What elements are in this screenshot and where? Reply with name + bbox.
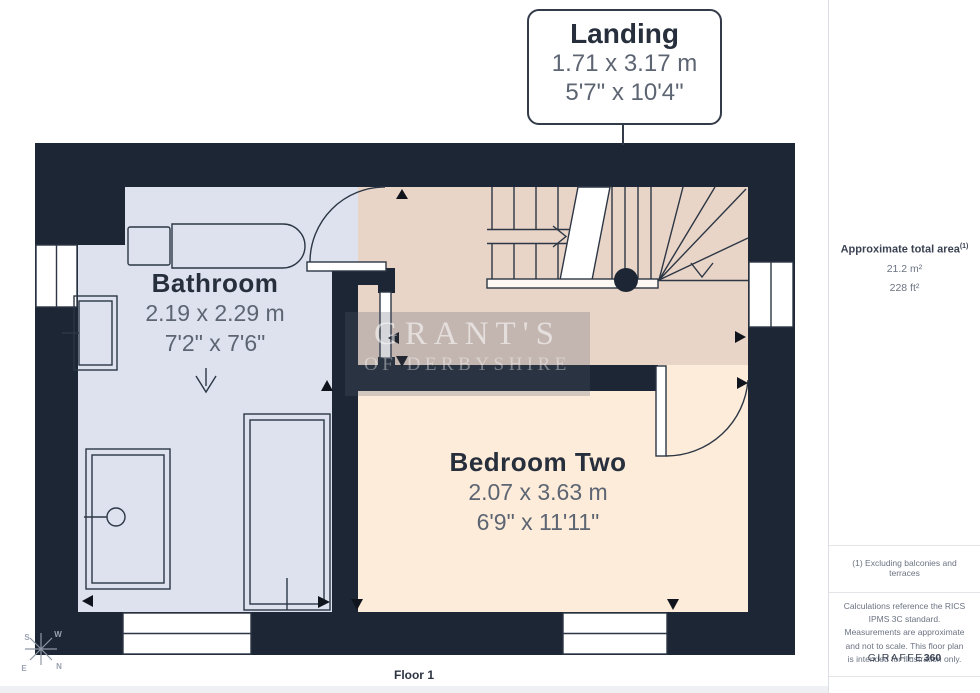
sidebar-divider bbox=[829, 676, 980, 677]
total-area-block: Approximate total area(1) 21.2 m² 228 ft… bbox=[829, 243, 980, 294]
room-bedroom-door-gap-fill bbox=[658, 365, 748, 391]
wall-stub-upper bbox=[378, 283, 395, 293]
floor-label: Floor 1 bbox=[0, 668, 828, 682]
room-bathroom-fill bbox=[78, 187, 332, 612]
wall-bottom bbox=[35, 612, 795, 655]
wall-top bbox=[35, 143, 795, 187]
wall-notch-top-left bbox=[78, 187, 125, 245]
total-area-metric: 21.2 m² bbox=[829, 263, 980, 275]
footnote-marker: (1) bbox=[960, 243, 969, 250]
room-dim-imperial: 6'9" x 11'11" bbox=[413, 508, 663, 538]
floor-plan-page: S W E N Bathroom 2.19 x 2.29 m 7'2" x 7'… bbox=[0, 0, 980, 693]
wall-right bbox=[748, 187, 795, 612]
callout-dim-imperial: 5'7" x 10'4" bbox=[529, 79, 720, 108]
landing-callout: Landing 1.71 x 3.17 m 5'7" x 10'4" bbox=[527, 9, 722, 125]
compass-s: S bbox=[24, 633, 30, 642]
sidebar-divider bbox=[829, 592, 980, 593]
room-dim-metric: 2.19 x 2.29 m bbox=[90, 299, 340, 329]
watermark-line2: OF DERBYSHIRE bbox=[345, 354, 590, 376]
bathroom-label: Bathroom 2.19 x 2.29 m 7'2" x 7'6" bbox=[90, 268, 340, 359]
bedroom-two-label: Bedroom Two 2.07 x 3.63 m 6'9" x 11'11" bbox=[413, 447, 663, 538]
callout-room-name: Landing bbox=[529, 18, 720, 50]
brand-suffix: 360 bbox=[924, 652, 942, 664]
watermark: GRANT'S OF DERBYSHIRE bbox=[345, 312, 590, 396]
total-area-title: Approximate total area(1) bbox=[829, 243, 980, 256]
brand-name: GIRAFFE bbox=[868, 652, 924, 664]
sidebar-divider bbox=[829, 545, 980, 546]
wall-left bbox=[35, 187, 78, 655]
brand-logo: GIRAFFE360 bbox=[829, 652, 980, 664]
room-name: Bedroom Two bbox=[413, 447, 663, 478]
area-footnote: (1) Excluding balconies and terraces bbox=[829, 558, 980, 578]
watermark-line1: GRANT'S bbox=[345, 316, 590, 353]
total-area-imperial: 228 ft² bbox=[829, 282, 980, 294]
room-name: Bathroom bbox=[90, 268, 340, 299]
callout-dim-metric: 1.71 x 3.17 m bbox=[529, 50, 720, 79]
room-dim-metric: 2.07 x 3.63 m bbox=[413, 478, 663, 508]
room-dim-imperial: 7'2" x 7'6" bbox=[90, 329, 340, 359]
info-sidebar: Approximate total area(1) 21.2 m² 228 ft… bbox=[828, 0, 980, 693]
